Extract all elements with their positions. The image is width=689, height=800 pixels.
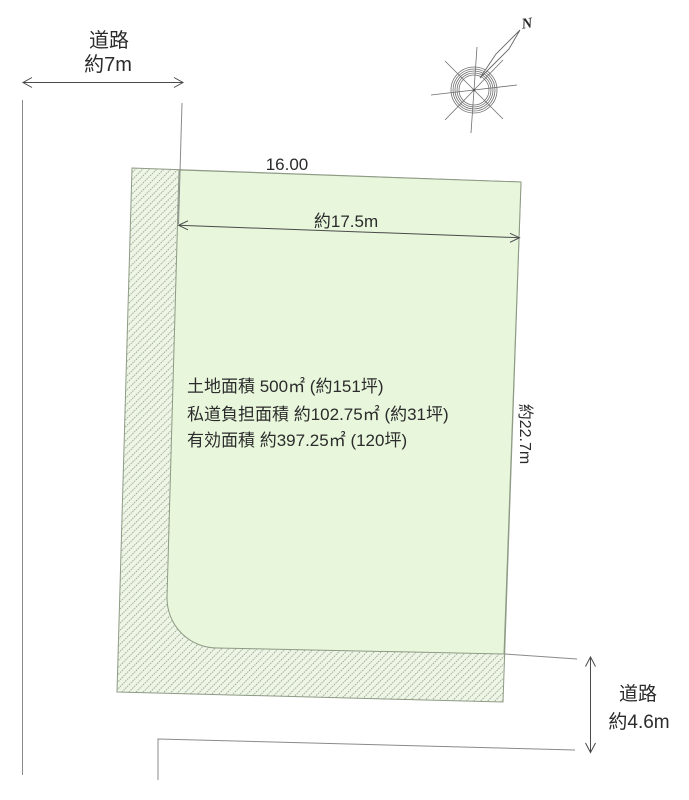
bottom-road-lower-edge-line (158, 739, 575, 780)
effective-area-text: 有効面積 約397.25㎡ (120坪) (187, 431, 407, 450)
north-label: N (520, 15, 535, 33)
north-arrow-icon (480, 30, 520, 78)
compass: N (431, 15, 535, 133)
top-edge-length-label: 16.00 (266, 155, 309, 174)
left-road-width-label: 約7m (84, 53, 132, 76)
compass-rose-icon (431, 47, 517, 133)
bottom-road-label: 道路 (619, 683, 657, 705)
land-area-text: 土地面積 500㎡ (約151坪) (187, 377, 384, 396)
left-road-label: 道路 (89, 29, 129, 52)
frontage-label: 約17.5m (314, 212, 378, 231)
bottom-road-upper-edge-line (505, 654, 577, 659)
diagram-canvas: 道路 約7m 16.00 約17.5m 土地面積 500㎡ (約151坪) 私道… (0, 0, 689, 800)
land-plot-diagram: 道路 約7m 16.00 約17.5m 土地面積 500㎡ (約151坪) 私道… (0, 0, 689, 800)
bottom-road-width-label: 約4.6m (608, 711, 669, 733)
depth-label: 約22.7m (516, 404, 534, 464)
private-road-burden-area-text: 私道負担面積 約102.75㎡ (約31坪) (187, 405, 449, 424)
